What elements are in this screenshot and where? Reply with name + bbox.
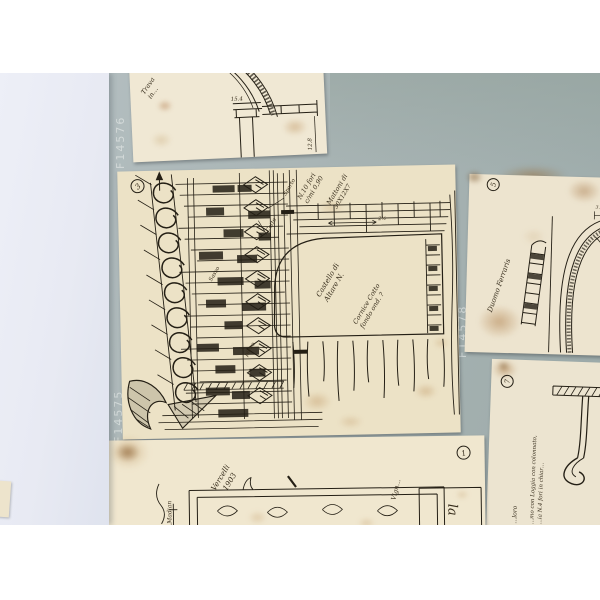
sheet-f14576: 15.4 12.8 Trava in… (129, 73, 327, 162)
handwritten-note-title: Castello di Altare N. Cornice Cotto fond… (314, 261, 390, 332)
sheet-number: 3 (133, 181, 143, 191)
plan-course-lines (286, 201, 451, 234)
arch-springing-drawing: 15.4 12.8 Trava in… (129, 73, 327, 162)
ladder-element (521, 240, 546, 326)
scalloped-tile-band (135, 174, 198, 411)
sheet-f14578: 3.8 Duomo Ferraris 5 (465, 174, 600, 356)
sheet-number: 5 (489, 181, 498, 188)
guide-lines (153, 169, 322, 429)
board-shading (330, 73, 600, 173)
archive-label-f14576: F14576 (114, 113, 127, 169)
impost-capital (233, 102, 264, 157)
dimension-text: 12.8 (307, 137, 314, 150)
tissue-paper (0, 73, 109, 525)
sheet-bottom-right: …mo con Loggia con colonnato, …ia N.4 fo… (486, 359, 600, 525)
archive-photograph: F14576 F14575 F14578 15.4 12.8 Trava in… (0, 0, 600, 600)
sheet-number: 7 (503, 378, 512, 384)
arch-study-drawing: 3.8 Duomo Ferraris 5 (465, 174, 600, 356)
ink-dash (294, 350, 307, 354)
mat-board: F14576 F14575 F14578 15.4 12.8 Trava in… (0, 73, 600, 525)
iron-bracket-drawing: …mo con Loggia con colonnato, …ia N.4 fo… (486, 359, 600, 525)
dimension-text: 2½ (377, 215, 386, 222)
edge-bricks (428, 246, 439, 331)
dimension-text: 3.8 (596, 204, 600, 210)
svg-text:Vign…: Vign… (389, 478, 402, 501)
cornice-section-drawing: 3 N.10 fori c/mi 0,90 Mattoni di 30X12X7… (117, 164, 461, 439)
ink-dash (281, 210, 294, 214)
handwritten-note-vertical: …Madian (166, 501, 173, 525)
svg-text:Cotto: Cotto (265, 217, 278, 234)
datum-pole (156, 173, 162, 191)
handwritten-note: Duomo Ferraris (486, 257, 513, 314)
handwritten-note: Vign… (389, 478, 402, 501)
svg-text:Duomo Ferraris: Duomo Ferraris (486, 257, 513, 314)
handwritten-place-date: Vercelli 1903 (209, 463, 240, 498)
printed-fragment: la (444, 504, 459, 516)
handwritten-note: Trava in… (139, 76, 163, 101)
sheet-number: 1 (460, 448, 467, 458)
dimension-text: 15.4 (231, 96, 244, 103)
sheet-bottom-center: la …Madian Vercelli 1903 Vign… 1 (106, 435, 485, 525)
handwritten-note-vertical: …ia N.4 fori in chiar… (537, 462, 545, 524)
handwritten-note-vertical: …loro (511, 505, 519, 524)
sheet-f14575: 3 N.10 fori c/mi 0,90 Mattoni di 30X12X7… (117, 164, 461, 439)
panel-frame-drawing: la …Madian Vercelli 1903 Vign… 1 (106, 435, 485, 525)
